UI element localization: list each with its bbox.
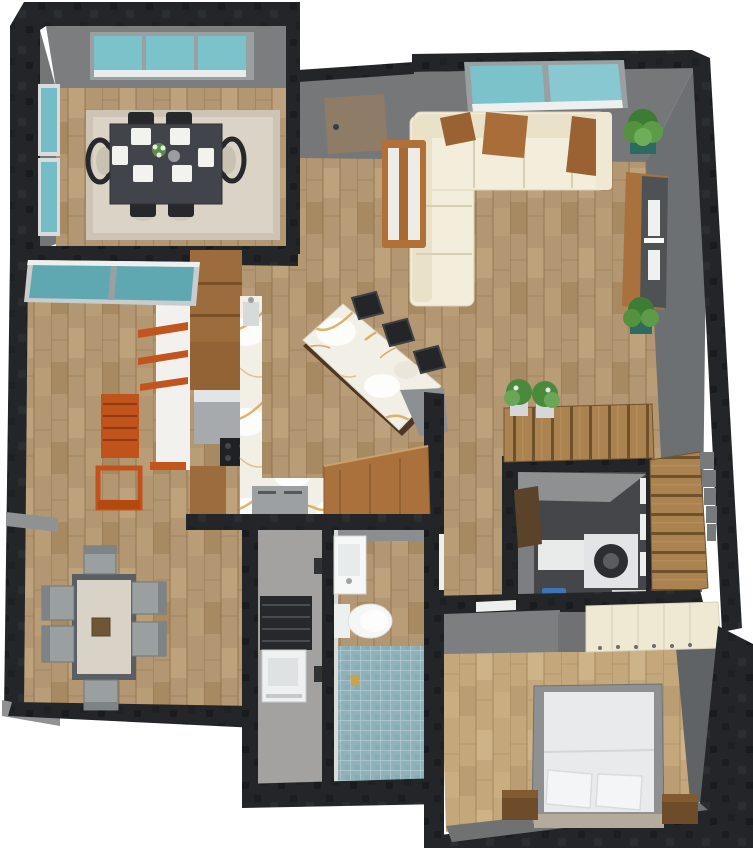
charger-plate — [168, 150, 180, 162]
hanger-5 — [670, 644, 674, 648]
stairwell-frame-3 — [640, 552, 646, 576]
nightstand-e-top — [662, 794, 698, 802]
place-setting-3 — [133, 165, 153, 182]
place-setting-4 — [172, 165, 192, 182]
stair-step-4 — [706, 506, 717, 523]
table2-centerpiece — [92, 618, 110, 636]
shower-floor — [334, 646, 428, 786]
bar-stool-2 — [383, 319, 414, 346]
freezer-lid — [268, 658, 298, 686]
floor-plan-canvas — [0, 0, 753, 848]
cabinet-divider-2 — [190, 314, 242, 317]
chair2-e1-back — [158, 582, 166, 614]
place-setting-5 — [112, 146, 128, 165]
dining-east-wall — [286, 2, 300, 254]
mid-cabinet — [190, 342, 240, 390]
bar-stool-3 — [414, 346, 445, 373]
chair2-n-back — [84, 546, 116, 554]
shoe-rack-stripe-3 — [262, 628, 310, 630]
stair-plant-1b — [504, 390, 520, 406]
headboard — [534, 814, 664, 828]
wall-hook-2 — [314, 666, 322, 682]
chair2-s-back — [84, 702, 118, 710]
dishwasher — [252, 486, 308, 516]
plant-e-leaf-2 — [623, 309, 641, 327]
stair-step-5 — [707, 524, 716, 541]
toilet-seat — [360, 610, 388, 632]
dining-west-wall — [10, 2, 40, 256]
hanger-2 — [616, 645, 620, 649]
stairwell-frame-2 — [640, 514, 646, 540]
shoe-rack-stripe-1 — [262, 604, 310, 606]
plant-ne-leaf-4 — [634, 128, 652, 146]
entry-door — [324, 94, 388, 154]
orange-chair-back — [98, 500, 140, 509]
bloom-2 — [161, 146, 166, 151]
chair2-e2-back — [158, 622, 166, 656]
sofa-throw — [482, 112, 528, 158]
coffee-table-bar — [399, 148, 408, 240]
stairs-right-run — [650, 452, 708, 598]
tv-leg-bar — [644, 238, 664, 243]
bedroom-door-frame — [476, 600, 516, 612]
bar-stool-1 — [352, 292, 383, 319]
window-west-1-glass — [41, 88, 57, 152]
skylight-living-pane-1 — [470, 65, 545, 106]
wall-hook-1 — [314, 558, 322, 574]
plant-e-leaf-3 — [641, 309, 659, 327]
shoe-rack-stripe-2 — [262, 616, 310, 618]
hall-door — [514, 486, 542, 548]
chair2-w1-back — [42, 586, 50, 620]
mudroom-west-wall — [242, 514, 258, 794]
stair-bloom-1 — [514, 386, 519, 391]
place-setting-2 — [170, 128, 190, 145]
stair-step-2 — [702, 470, 716, 487]
skylight-dining-sill — [94, 70, 246, 77]
bed-pillow-2 — [596, 774, 642, 810]
hanger-4 — [652, 644, 656, 648]
shoe-rack-stripe-4 — [262, 640, 310, 642]
entry-door-handle — [333, 124, 339, 130]
stairwell-frame-1 — [640, 478, 646, 504]
bath-sink-basin — [338, 544, 360, 576]
stair-step-3 — [704, 488, 716, 505]
hanger-6 — [688, 643, 692, 647]
lower-cabinet — [190, 466, 226, 516]
left-wing-south-wall — [8, 702, 258, 728]
place-setting-1 — [131, 128, 151, 145]
washer-door-inner — [603, 553, 619, 569]
sofa-armrest — [596, 112, 612, 190]
burner-3 — [225, 455, 231, 461]
laundry-counter — [538, 540, 584, 570]
dishwasher-handle-2 — [284, 491, 302, 494]
bath-sink-faucet — [346, 578, 352, 584]
burner-1 — [225, 443, 231, 449]
chair2-w2-back — [42, 626, 50, 662]
tv-panel-1 — [648, 200, 660, 236]
stair-step-1 — [700, 452, 714, 469]
freezer-handle — [266, 694, 302, 698]
bath-north-wall — [186, 514, 428, 530]
hanger-1 — [598, 646, 602, 650]
bedroom-north-face — [444, 610, 560, 654]
kitchen-sink — [243, 302, 259, 326]
window-west-2-glass — [41, 162, 57, 232]
tv-panel-2 — [648, 250, 660, 280]
bath-east-door-frame — [439, 534, 444, 590]
stair-bloom-2 — [546, 388, 551, 393]
bloom-1 — [153, 145, 158, 150]
bloom-3 — [157, 153, 162, 158]
dishwasher-handle-1 — [258, 491, 276, 494]
closet-divider — [558, 612, 588, 652]
hanger-3 — [634, 645, 638, 649]
shelf-orange-4 — [150, 462, 186, 470]
stair-plant-2b — [544, 392, 560, 408]
floor-plan-render — [0, 0, 753, 848]
nightstand-w-top — [502, 790, 538, 798]
dining-north-wall — [24, 2, 298, 30]
west-outer-wall — [4, 256, 28, 712]
place-setting-6 — [198, 148, 214, 167]
sink-faucet — [248, 297, 254, 303]
bed-pillow-1 — [546, 770, 592, 808]
skylight-living-pane-2 — [548, 64, 622, 104]
sofa-pillow-left — [440, 112, 476, 146]
fridge-top — [194, 390, 242, 402]
